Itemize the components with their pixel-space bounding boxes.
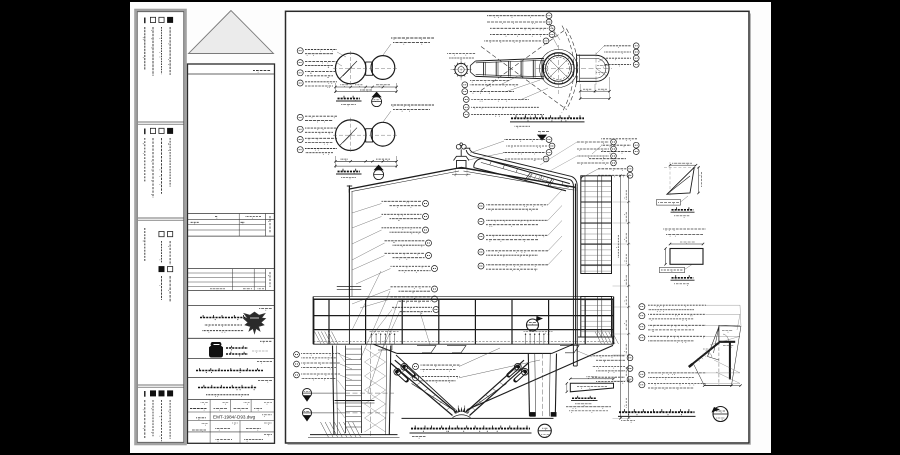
svg-text:EMT-1984/-D93.dwg: EMT-1984/-D93.dwg <box>213 415 256 420</box>
